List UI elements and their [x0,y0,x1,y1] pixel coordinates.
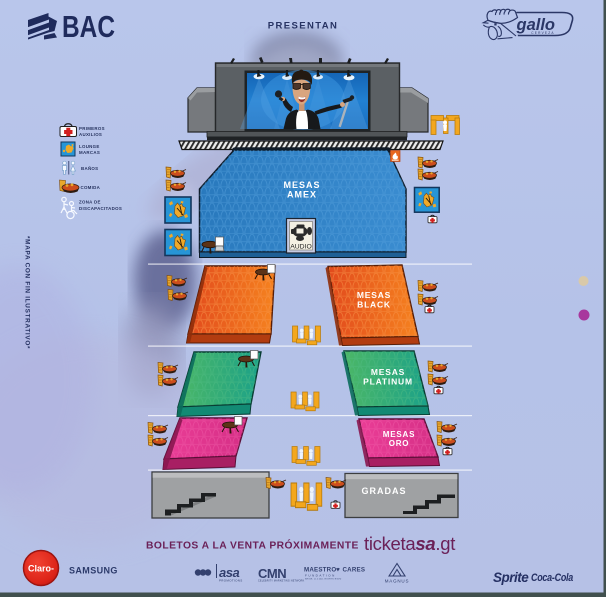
svg-text:Coca-Cola: Coca-Cola [531,572,573,584]
svg-text:MAESTRO: MAESTRO [304,567,336,574]
svg-text:ORO: ORO [389,439,410,448]
svg-text:AUXILIOS: AUXILIOS [79,132,102,137]
svg-text:LOUNGE: LOUNGE [79,144,100,149]
svg-text:SHOW, LLC ALL RIGHTS RSVD: SHOW, LLC ALL RIGHTS RSVD [305,578,342,581]
svg-text:SAMSUNG: SAMSUNG [69,566,118,576]
svg-text:GRADAS: GRADAS [361,486,406,496]
svg-text:MESAS: MESAS [283,180,320,190]
svg-text:*MAPA CON FIN ILUSTRATIVO*: *MAPA CON FIN ILUSTRATIVO* [24,236,31,349]
svg-text:CARES: CARES [343,567,366,574]
svg-text:ticketasa.gt: ticketasa.gt [364,533,455,554]
svg-text:PRIMEROS: PRIMEROS [79,126,105,131]
svg-text:CELEBRITY MARKETING NETWORK: CELEBRITY MARKETING NETWORK [258,580,305,583]
svg-text:BOLETOS A LA VENTA PRÓXIMAMENT: BOLETOS A LA VENTA PRÓXIMAMENTE [146,539,359,552]
svg-text:DISCAPACITADOS: DISCAPACITADOS [79,206,122,211]
svg-text:CERVEZA: CERVEZA [531,31,554,35]
svg-text:MARCAS: MARCAS [79,150,100,155]
svg-text:BLACK: BLACK [357,300,391,310]
svg-text:AUDIO: AUDIO [290,244,312,251]
svg-text:BAC: BAC [62,9,115,44]
svg-text:PROMOTIONS: PROMOTIONS [219,579,243,583]
svg-text:MESAS: MESAS [383,430,415,439]
svg-text:Claro-: Claro- [28,564,54,574]
svg-text:MESAS: MESAS [357,290,391,300]
svg-text:MAGNUS: MAGNUS [385,579,410,584]
svg-text:PLATINUM: PLATINUM [363,377,413,387]
svg-text:PRESENTAN: PRESENTAN [268,21,339,32]
svg-text:AMEX: AMEX [287,190,317,200]
svg-text:FUNDATION: FUNDATION [305,574,336,578]
svg-text:Sprite: Sprite [493,570,529,585]
svg-text:MESAS: MESAS [371,367,405,377]
svg-text:BAÑOS: BAÑOS [81,166,98,171]
svg-text:COMIDA: COMIDA [81,185,101,190]
svg-text:♥: ♥ [336,567,340,574]
svg-text:ZONA DE: ZONA DE [79,200,101,205]
